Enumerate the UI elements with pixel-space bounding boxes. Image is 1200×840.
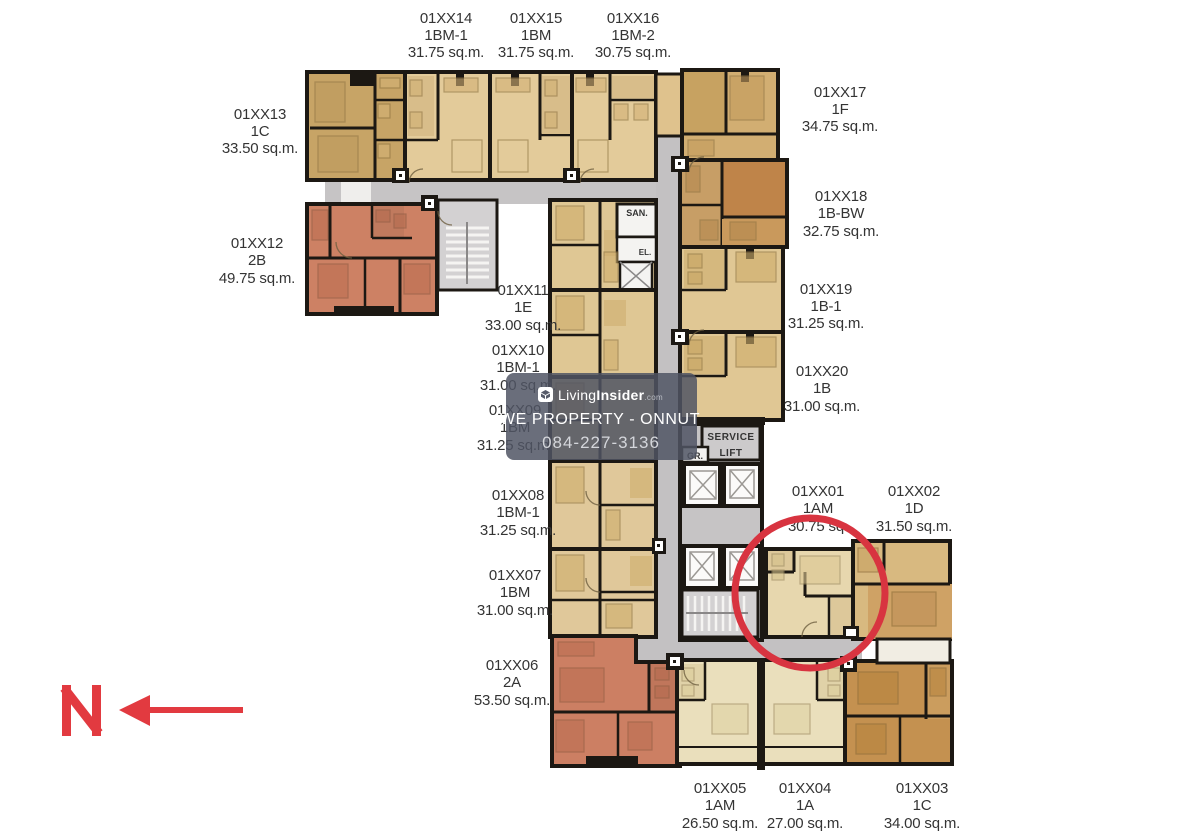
svg-text:EL.: EL. [639, 248, 651, 257]
svg-text:1B-BW: 1B-BW [818, 205, 866, 222]
svg-text:1BM-2: 1BM-2 [611, 27, 654, 44]
svg-text:01XX05: 01XX05 [694, 780, 746, 797]
svg-text:31.00 sq.m.: 31.00 sq.m. [477, 602, 553, 619]
svg-text:1BM-1: 1BM-1 [496, 504, 539, 521]
svg-text:32.75 sq.m.: 32.75 sq.m. [803, 223, 879, 240]
svg-text:01XX07: 01XX07 [489, 567, 541, 584]
svg-text:01XX18: 01XX18 [815, 188, 867, 205]
svg-text:30.75 sq.m.: 30.75 sq.m. [595, 44, 671, 61]
svg-text:01XX04: 01XX04 [779, 780, 831, 797]
svg-text:01XX17: 01XX17 [814, 84, 866, 101]
svg-text:1D: 1D [905, 500, 924, 517]
svg-text:1C: 1C [913, 797, 932, 814]
svg-text:01XX19: 01XX19 [800, 281, 852, 298]
svg-text:01XX03: 01XX03 [896, 780, 948, 797]
svg-text:01XX13: 01XX13 [234, 106, 286, 123]
svg-text:1E: 1E [514, 299, 532, 316]
svg-text:WE PROPERTY - ONNUT: WE PROPERTY - ONNUT [500, 411, 700, 428]
svg-text:01XX14: 01XX14 [420, 10, 472, 27]
svg-text:SAN.: SAN. [626, 208, 648, 218]
svg-text:1F: 1F [831, 101, 848, 118]
svg-text:1BM: 1BM [521, 27, 551, 44]
svg-text:1AM: 1AM [705, 797, 735, 814]
svg-text:31.50 sq.m.: 31.50 sq.m. [876, 518, 952, 535]
svg-text:34.00 sq.m.: 34.00 sq.m. [884, 815, 960, 832]
svg-text:31.25 sq.m.: 31.25 sq.m. [480, 522, 556, 539]
svg-text:33.50 sq.m.: 33.50 sq.m. [222, 140, 298, 157]
svg-text:1B: 1B [813, 380, 831, 397]
svg-text:01XX01: 01XX01 [792, 483, 844, 500]
svg-text:01XX11: 01XX11 [497, 282, 548, 299]
svg-text:31.75 sq.m.: 31.75 sq.m. [408, 44, 484, 61]
svg-text:31.25 sq.m.: 31.25 sq.m. [788, 315, 864, 332]
svg-text:31.00 sq.m.: 31.00 sq.m. [784, 398, 860, 415]
svg-text:084-227-3136: 084-227-3136 [542, 433, 660, 452]
svg-text:1BM-1: 1BM-1 [424, 27, 467, 44]
svg-text:34.75 sq.m.: 34.75 sq.m. [802, 118, 878, 135]
svg-text:49.75 sq.m.: 49.75 sq.m. [219, 270, 295, 287]
svg-text:LIFT: LIFT [719, 448, 742, 459]
svg-text:31.75 sq.m.: 31.75 sq.m. [498, 44, 574, 61]
svg-text:1A: 1A [796, 797, 814, 814]
svg-text:01XX16: 01XX16 [607, 10, 659, 27]
svg-text:33.00 sq.m.: 33.00 sq.m. [485, 317, 561, 334]
svg-text:01XX10: 01XX10 [492, 342, 544, 359]
svg-text:1AM: 1AM [803, 500, 833, 517]
svg-text:2A: 2A [503, 674, 521, 691]
svg-text:01XX06: 01XX06 [486, 657, 538, 674]
svg-text:2B: 2B [248, 252, 266, 269]
svg-text:01XX15: 01XX15 [510, 10, 562, 27]
svg-text:1C: 1C [251, 123, 270, 140]
svg-text:01XX20: 01XX20 [796, 363, 848, 380]
svg-text:01XX02: 01XX02 [888, 483, 940, 500]
svg-text:01XX08: 01XX08 [492, 487, 544, 504]
svg-text:27.00 sq.m.: 27.00 sq.m. [767, 815, 843, 832]
svg-text:SERVICE: SERVICE [707, 432, 754, 443]
svg-text:1BM: 1BM [500, 584, 530, 601]
svg-text:53.50 sq.m.: 53.50 sq.m. [474, 692, 550, 709]
svg-text:01XX12: 01XX12 [231, 235, 283, 252]
svg-text:26.50 sq.m.: 26.50 sq.m. [682, 815, 758, 832]
svg-text:1B-1: 1B-1 [811, 298, 842, 315]
